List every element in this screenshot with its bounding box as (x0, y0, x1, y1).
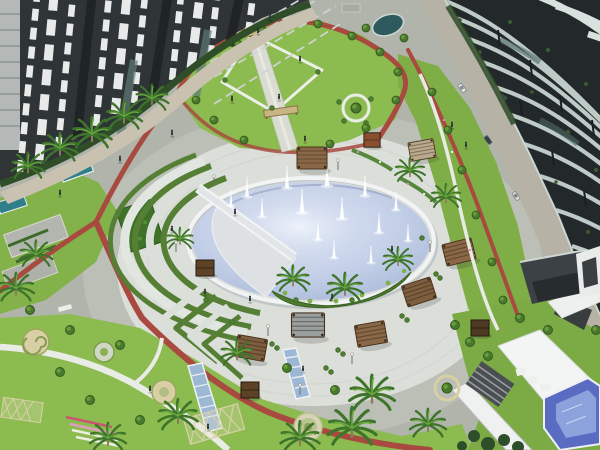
tree-icon (351, 103, 361, 113)
pergola (292, 313, 329, 344)
round-garden-bed (152, 380, 176, 404)
kiosk (364, 133, 383, 150)
shrub-icon (369, 97, 374, 102)
scene-aerial-render (0, 0, 600, 450)
kiosk (241, 382, 262, 401)
shrub-icon (337, 100, 342, 105)
aerial-render-image (0, 0, 600, 450)
shrub-icon (342, 119, 347, 124)
spiral-flower-bed (23, 329, 49, 355)
light-tower-west (0, 0, 20, 150)
round-garden-bed (94, 342, 114, 362)
kiosk (196, 260, 217, 279)
kiosk (471, 320, 492, 339)
pergola (297, 147, 331, 175)
